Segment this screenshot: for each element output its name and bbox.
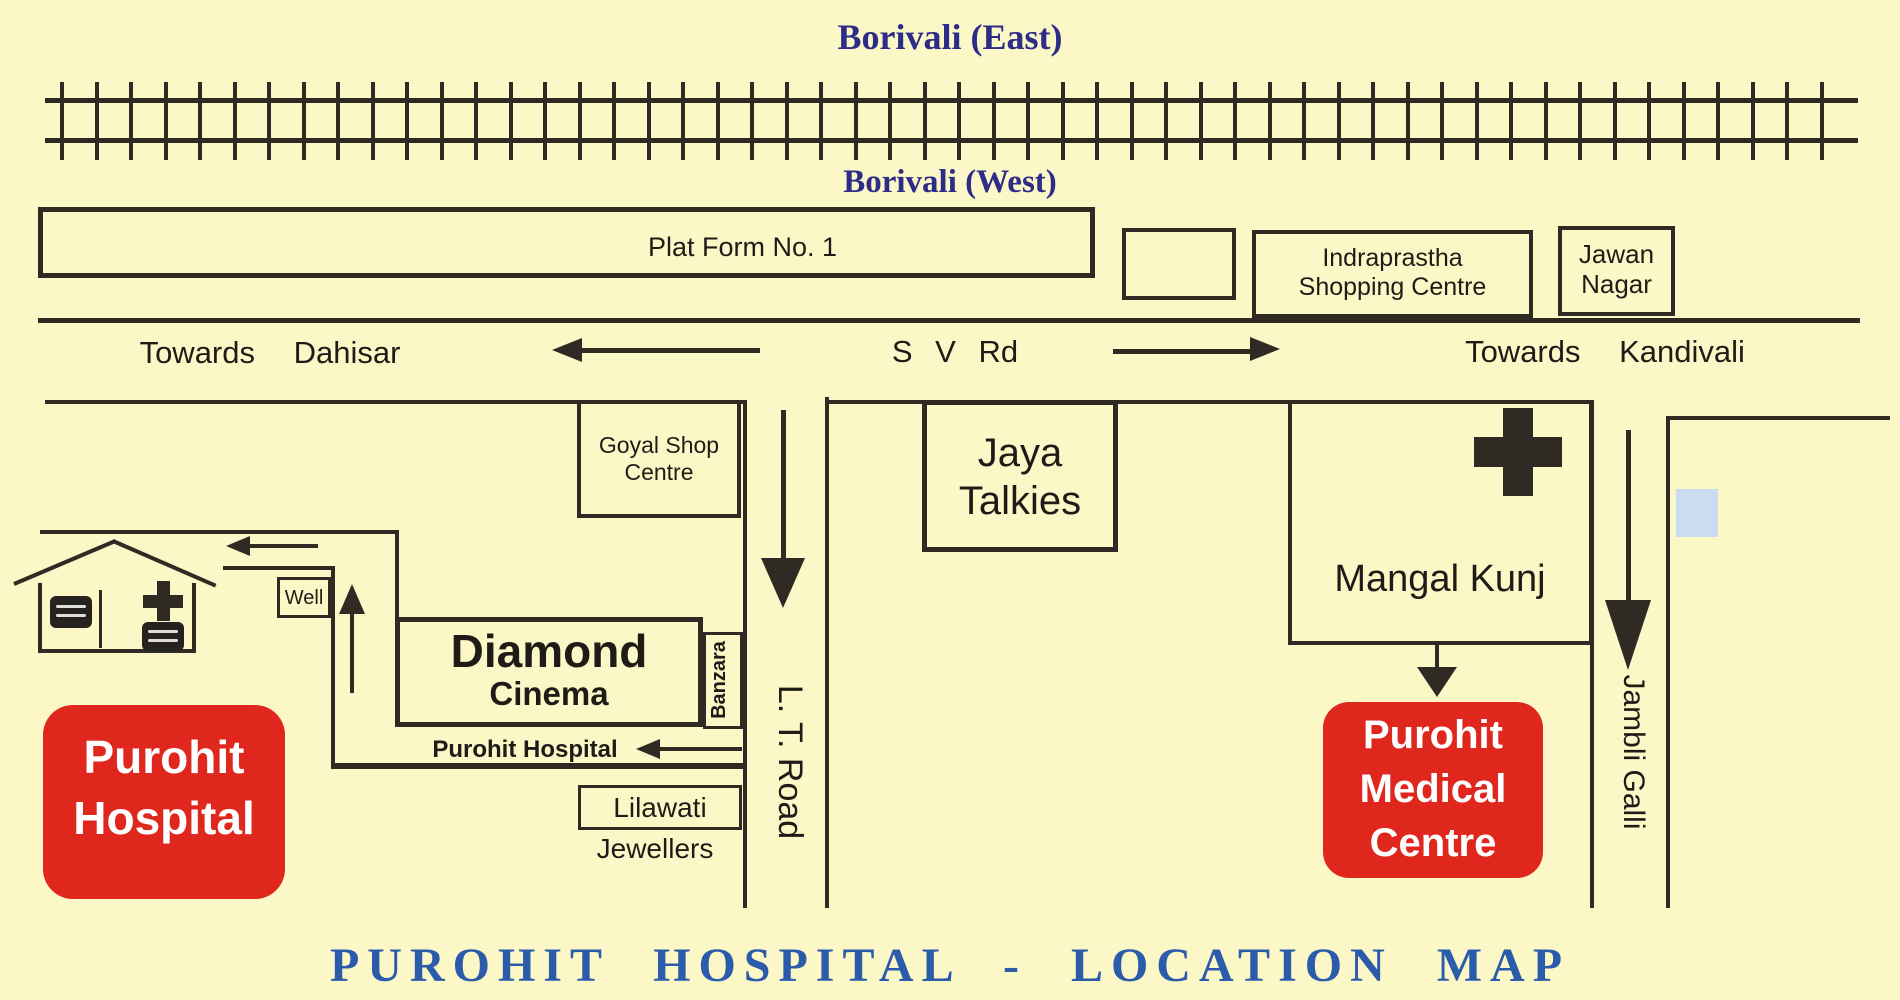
railway-tie [164,82,168,160]
hospital-label-line1: Purohit [43,727,285,788]
railway-ties [45,82,1858,160]
blue-plot-marker [1676,489,1718,537]
railway-tie [405,82,409,160]
towards-kandivali-label: Towards Kandivali [1400,334,1810,370]
lt-road-label: L. T. Road [769,662,809,862]
lilawati-box: Lilawati [578,785,742,830]
railway-tie [1337,82,1341,160]
lane-outer-right-edge [395,530,399,622]
railway-tie [1061,82,1065,160]
railway-tie [1716,82,1720,160]
sv-road-label: S V Rd [855,334,1055,370]
lt-road-left-edge [743,400,747,908]
well-label: Well [285,587,324,609]
railway-tie [681,82,685,160]
banzara-label: Banzara [708,600,738,760]
railway-tie [1475,82,1479,160]
location-map: Borivali (East) Borivali (West) Plat For… [0,0,1900,1000]
railway-tie [612,82,616,160]
railway-tie [1199,82,1203,160]
railway-tie [1820,82,1824,160]
railway-tie [543,82,547,160]
hospital-label-line2: Hospital [43,788,285,849]
purohit-lane-label: Purohit Hospital [420,736,630,764]
lilawati-label-line2: Jewellers [555,833,755,865]
jambli-galli-label: Jambli Galli [1610,652,1650,852]
lane-inner-right-edge [331,566,335,767]
railway-tie [302,82,306,160]
railway-tie [957,82,961,160]
railway-tie [233,82,237,160]
diamond-label-line1: Diamond [400,626,698,676]
jaya-talkies-box: Jaya Talkies [922,400,1118,552]
medical-centre-label-line2: Medical [1323,762,1543,816]
jaya-label-line1: Jaya [927,429,1113,477]
mangal-kunj-label: Mangal Kunj [1300,558,1580,601]
railway-tie [1026,82,1030,160]
railway-tie [923,82,927,160]
indraprastha-shopping-centre-box: Indraprastha Shopping Centre [1252,230,1533,318]
house-plaque-right [142,622,184,651]
railway-tie [578,82,582,160]
house-cross-icon [143,581,183,621]
railway-tie [1406,82,1410,160]
lt-road-right-edge [825,397,829,908]
railway-tie [1371,82,1375,160]
goyal-label-line1: Goyal Shop [581,432,737,459]
railway-tie [1130,82,1134,160]
unlabeled-building-box [1122,228,1236,300]
sv-road-lower-edge-mid1 [825,400,924,404]
sv-road-upper-edge [38,318,1860,323]
railway-tie [1544,82,1548,160]
station-label-east: Borivali (East) [0,16,1900,58]
jaya-label-line2: Talkies [927,477,1113,525]
railway-tie [474,82,478,160]
sv-road-lower-edge-mid2 [1116,400,1290,404]
jawan-label-line1: Jawan [1562,239,1671,269]
railway-tie [819,82,823,160]
railway-rail-top [45,98,1858,103]
railway-tie [854,82,858,160]
medical-cross-icon [1474,408,1562,496]
railway-tie [95,82,99,160]
railway-tie [1164,82,1168,160]
railway-tie [888,82,892,160]
medical-centre-label-line1: Purohit [1323,708,1543,762]
railway-tie [1509,82,1513,160]
indraprastha-label-line2: Shopping Centre [1256,273,1529,302]
railway-tie [198,82,202,160]
jawan-label-line2: Nagar [1562,269,1671,299]
railway-tie [129,82,133,160]
purohit-hospital-badge: Purohit Hospital [43,705,285,899]
railway-tie [750,82,754,160]
railway-tie [1095,82,1099,160]
medical-centre-label-line3: Centre [1323,816,1543,870]
railway-tie [1785,82,1789,160]
lane-outer-top-edge [40,530,399,534]
platform-box [38,207,1095,278]
lilawati-label-line1: Lilawati [613,792,706,823]
railway-tie [509,82,513,160]
lane-inner-top-edge [223,566,335,570]
railway-tie [1268,82,1272,160]
diamond-label-line2: Cinema [400,676,698,712]
well-box: Well [277,577,331,618]
railway-tie [440,82,444,160]
railway-tie [336,82,340,160]
railway-tie [1440,82,1444,160]
railway-tie [1233,82,1237,160]
railway-rail-bottom [45,138,1858,143]
railway-tie [60,82,64,160]
towards-dahisar-label: Towards Dahisar [80,335,460,371]
station-label-west: Borivali (West) [0,164,1900,201]
house-divider [99,590,102,648]
railway-tie [992,82,996,160]
railway-tie [1613,82,1617,160]
railway-tie [785,82,789,160]
railway-tie [1578,82,1582,160]
house-plaque-left [50,596,92,628]
jawan-nagar-box: Jawan Nagar [1558,226,1675,316]
goyal-shop-centre-box: Goyal Shop Centre [577,400,741,518]
indraprastha-label-line1: Indraprastha [1256,244,1529,273]
railway-tie [716,82,720,160]
platform-label: Plat Form No. 1 [648,232,837,263]
jambli-galli-right-edge [1666,416,1670,908]
diamond-cinema-box: Diamond Cinema [395,617,703,727]
railway-tie [371,82,375,160]
railway-tie [1302,82,1306,160]
railway-tie [647,82,651,160]
railway-tie [1682,82,1686,160]
railway-tie [1647,82,1651,160]
railway-tie [267,82,271,160]
goyal-label-line2: Centre [581,459,737,486]
map-title: PUROHIT HOSPITAL - LOCATION MAP [0,938,1900,993]
purohit-medical-centre-badge: Purohit Medical Centre [1323,702,1543,878]
railway-tie [1751,82,1755,160]
jambli-galli-left-edge [1590,400,1594,908]
sv-road-lower-edge-right [1668,416,1890,420]
